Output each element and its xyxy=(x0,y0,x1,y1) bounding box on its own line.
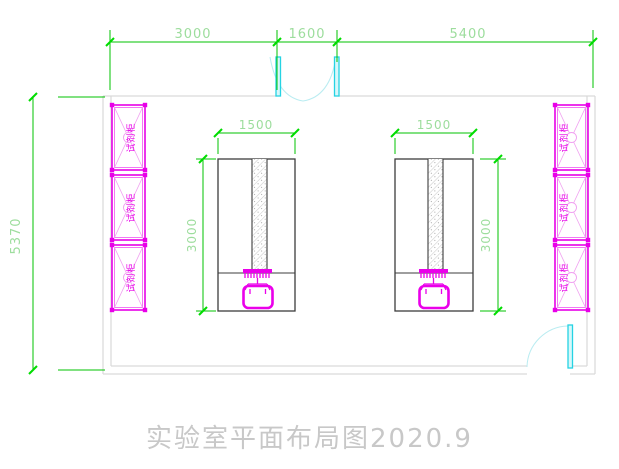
dim-label-1600-top: 1600 xyxy=(288,27,325,42)
drawing-title: 实验室平面布局图2020.9 xyxy=(0,418,619,455)
room-walls xyxy=(103,96,595,374)
door-leaf-right xyxy=(335,57,340,96)
reagent-cabinet-left-1: 试剂柜 xyxy=(110,103,147,172)
cabinet-label: 试剂柜 xyxy=(125,192,136,222)
top-dimension-chain: 3000 1600 5400 xyxy=(106,27,597,90)
reagent-cabinet-left-2: 试剂柜 xyxy=(110,173,147,242)
double-door-top xyxy=(270,57,339,101)
cabinet-label: 试剂柜 xyxy=(558,262,569,292)
reagent-cabinet-right-2: 试剂柜 xyxy=(553,173,590,242)
cabinet-label: 试剂柜 xyxy=(125,262,136,292)
dim-label-3000-bench-right: 3000 xyxy=(479,218,493,253)
reagent-cabinet-right-1: 试剂柜 xyxy=(553,103,590,172)
single-door-bottom-right xyxy=(527,325,573,368)
cabinet-label: 试剂柜 xyxy=(558,122,569,152)
floor-plan: 3000 1600 5400 5370 1500 3000 1500 3000 xyxy=(0,0,619,469)
dim-label-3000-bench-left: 3000 xyxy=(185,218,199,253)
lab-bench-right xyxy=(395,159,473,311)
door-leaf xyxy=(568,325,573,368)
cad-drawing-canvas: 3000 1600 5400 5370 1500 3000 1500 3000 xyxy=(0,0,619,469)
dim-label-3000-top: 3000 xyxy=(174,27,211,42)
left-dimension: 5370 xyxy=(9,93,105,374)
reagent-cabinet-right-3: 试剂柜 xyxy=(553,243,590,312)
cabinet-label: 试剂柜 xyxy=(125,122,136,152)
reagent-cabinet-left-3: 试剂柜 xyxy=(110,243,147,312)
dim-label-1500-bench-right: 1500 xyxy=(417,118,452,132)
cabinet-label: 试剂柜 xyxy=(558,192,569,222)
lab-bench-left xyxy=(218,159,295,311)
dim-label-1500-bench-left: 1500 xyxy=(239,118,274,132)
dim-label-5400-top: 5400 xyxy=(449,27,486,42)
dim-label-5370-left: 5370 xyxy=(9,217,24,254)
